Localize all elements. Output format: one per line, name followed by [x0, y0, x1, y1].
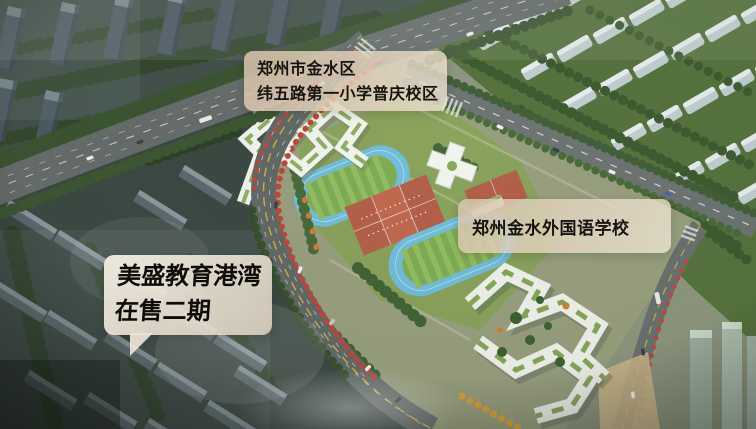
- aerial-view: 郑州市金水区 纬五路第一小学普庆校区 郑州金水外国语学校 美盛教育港湾 在售二期: [0, 0, 756, 429]
- project-name: 美盛教育港湾: [116, 259, 274, 294]
- bubble-tail-icon: [130, 333, 153, 356]
- primary-school-line2: 纬五路第一小学普庆校区: [257, 82, 447, 107]
- label-primary-school: 郑州市金水区 纬五路第一小学普庆校区: [244, 51, 447, 111]
- project-callout-bubble: 美盛教育港湾 在售二期: [104, 255, 272, 335]
- foreign-language-school-text: 郑州金水外国语学校: [472, 214, 630, 239]
- project-status: 在售二期: [114, 294, 272, 329]
- label-foreign-language-school: 郑州金水外国语学校: [458, 199, 671, 253]
- primary-school-line1: 郑州市金水区: [257, 57, 447, 82]
